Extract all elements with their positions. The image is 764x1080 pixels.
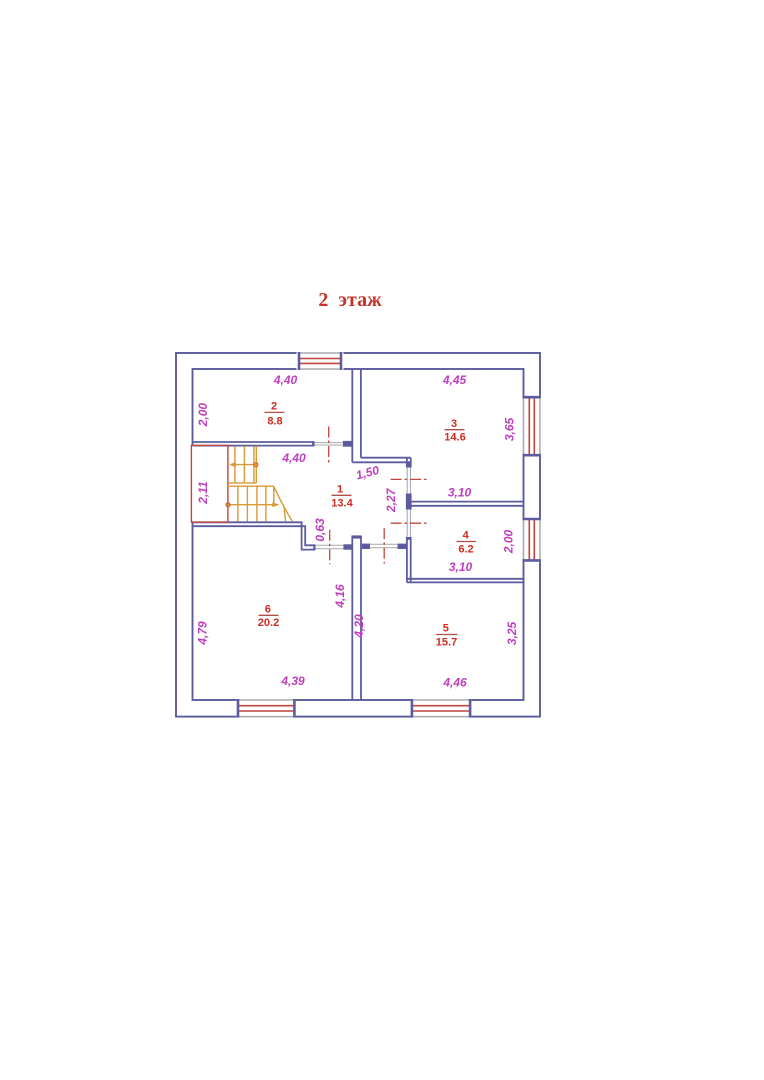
svg-text:4,46: 4,46: [442, 676, 467, 690]
svg-text:1,50: 1,50: [354, 463, 380, 483]
svg-text:4: 4: [463, 530, 470, 542]
svg-text:3,10: 3,10: [449, 560, 473, 574]
svg-text:2,27: 2,27: [384, 487, 398, 513]
svg-text:3,10: 3,10: [448, 486, 472, 500]
svg-text:0,63: 0,63: [313, 518, 327, 542]
svg-text:20.2: 20.2: [258, 617, 279, 629]
svg-text:4,16: 4,16: [333, 584, 347, 609]
svg-text:1: 1: [337, 484, 343, 496]
svg-text:2: 2: [271, 401, 277, 413]
svg-text:6: 6: [265, 604, 271, 616]
svg-text:3,25: 3,25: [505, 621, 519, 645]
svg-text:2 этаж: 2 этаж: [318, 289, 382, 311]
svg-text:6.2: 6.2: [458, 544, 473, 556]
svg-text:2,11: 2,11: [196, 481, 210, 505]
svg-text:4,40: 4,40: [281, 451, 306, 465]
svg-text:13.4: 13.4: [331, 497, 353, 509]
svg-text:4,39: 4,39: [280, 674, 305, 688]
svg-text:2,00: 2,00: [196, 403, 210, 428]
svg-text:4,40: 4,40: [273, 373, 298, 387]
svg-text:3: 3: [451, 418, 457, 430]
svg-text:8.8: 8.8: [267, 415, 282, 427]
svg-text:4,45: 4,45: [442, 373, 467, 387]
svg-text:3,65: 3,65: [502, 417, 516, 441]
svg-text:4,79: 4,79: [196, 621, 210, 646]
svg-text:14.6: 14.6: [444, 432, 465, 444]
svg-text:4,20: 4,20: [352, 614, 366, 639]
svg-text:15.7: 15.7: [436, 636, 457, 648]
svg-text:2,00: 2,00: [502, 529, 516, 554]
svg-text:5: 5: [443, 623, 449, 635]
